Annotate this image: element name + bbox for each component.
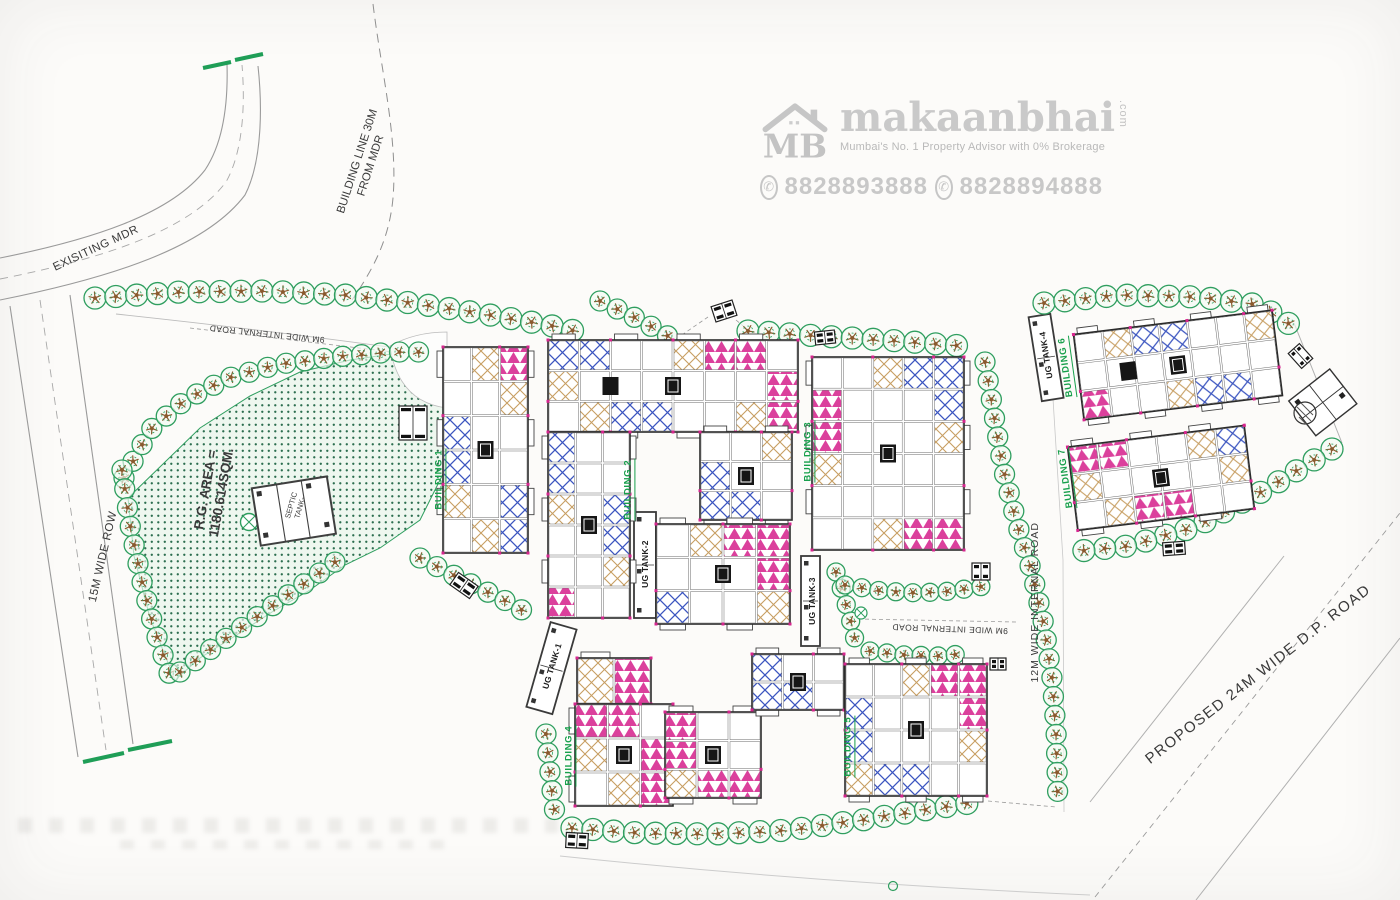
tree-icon: [728, 822, 750, 844]
building-4-footprint: [569, 652, 763, 808]
tree-icon: [221, 367, 241, 387]
tree-icon: [887, 583, 905, 601]
tree-row: [84, 280, 584, 341]
tree-icon: [946, 646, 964, 664]
tree-icon: [853, 579, 871, 597]
tree-icon: [790, 817, 812, 839]
site-plan-canvas: MB makaanbhai .com Mumbai's No. 1 Proper…: [0, 0, 1400, 900]
tree-icon: [142, 609, 162, 629]
tree-icon: [1116, 284, 1138, 306]
tree-icon: [749, 821, 771, 843]
tree-icon: [112, 460, 132, 480]
tree-icon: [371, 343, 391, 363]
tree-icon: [770, 819, 792, 841]
tree-icon: [167, 281, 189, 303]
parking-icon: [711, 300, 737, 322]
tree-icon: [981, 389, 1001, 409]
tree-icon: [105, 286, 127, 308]
tree-icon: [935, 796, 957, 818]
building-3-footprint: [806, 356, 970, 552]
tree-icon: [894, 802, 916, 824]
parking-icon: [399, 406, 427, 440]
tree-icon: [295, 351, 315, 371]
building-2-footprint: [542, 334, 800, 630]
tree-icon: [985, 408, 1005, 428]
tree-icon: [512, 600, 532, 620]
building-3-label: BUILDING 3: [796, 423, 815, 483]
tree-icon: [314, 348, 334, 368]
tree-icon: [544, 799, 564, 819]
tree-icon: [1179, 286, 1201, 308]
tree-icon: [128, 554, 148, 574]
tree-icon: [836, 576, 854, 594]
building-5-label: BUILDING 5: [836, 718, 855, 778]
tree-icon: [153, 645, 173, 665]
tree-icon: [1135, 530, 1157, 552]
tree-icon: [873, 805, 895, 827]
tree-icon: [1095, 285, 1117, 307]
tree-icon: [521, 311, 543, 333]
tree-icon: [352, 345, 372, 365]
tree-icon: [1043, 686, 1063, 706]
building-1-footprint: [437, 346, 534, 555]
tree-icon: [921, 583, 939, 601]
building-2-label: BUILDING 2: [616, 461, 635, 521]
manhole-icon: [855, 607, 867, 619]
tree-icon: [1094, 537, 1116, 559]
tree-icon: [978, 371, 998, 391]
tree-icon: [1009, 519, 1029, 539]
tree-icon: [1220, 290, 1242, 312]
tree-icon: [115, 479, 135, 499]
tree-icon: [500, 308, 522, 330]
tree-icon: [1073, 540, 1095, 562]
tree-icon: [1042, 668, 1062, 688]
tree-icon: [1114, 535, 1136, 557]
tree-icon: [991, 446, 1011, 466]
tree-icon: [999, 483, 1019, 503]
tree-icon: [938, 582, 956, 600]
tree-icon: [126, 284, 148, 306]
tree-icon: [841, 327, 863, 349]
tree-icon: [438, 298, 460, 320]
tree-icon: [1054, 290, 1076, 312]
tree-icon: [665, 822, 687, 844]
tree-icon: [479, 304, 501, 326]
tree-icon: [1200, 287, 1222, 309]
tree-icon: [209, 281, 231, 303]
tree-icon: [904, 584, 922, 602]
tree-icon: [1277, 312, 1299, 334]
tree-icon: [408, 342, 428, 362]
tree-icon: [1045, 705, 1065, 725]
tree-icon: [314, 283, 336, 305]
tree-icon: [325, 552, 345, 572]
parking-icon: [814, 330, 835, 345]
tree-icon: [955, 580, 973, 598]
tree-icon: [333, 346, 353, 366]
tree-icon: [188, 281, 210, 303]
tree-icon: [459, 301, 481, 323]
tree-icon: [147, 283, 169, 305]
tree-icon: [251, 280, 273, 302]
building-5-footprint: [751, 648, 989, 802]
tree-icon: [837, 596, 855, 614]
tree-icon: [1004, 501, 1024, 521]
tree-icon: [995, 464, 1015, 484]
tree-icon: [417, 294, 439, 316]
tree-icon: [861, 642, 879, 660]
tree-icon: [137, 591, 157, 611]
tree-icon: [258, 357, 278, 377]
building-1-label: BUILDING 1: [427, 451, 446, 511]
tree-icon: [707, 823, 729, 845]
tree-icon: [1048, 781, 1068, 801]
tree-icon: [929, 647, 947, 665]
tree-icon: [945, 335, 967, 357]
tree-icon: [988, 427, 1008, 447]
tree-icon: [1158, 285, 1180, 307]
internal-road-12m-label: 12M WIDE INTERNAL ROAD: [1029, 520, 1042, 685]
tree-icon: [853, 809, 875, 831]
tree-icon: [124, 535, 144, 555]
tree-icon: [355, 287, 377, 309]
tree-icon: [1137, 285, 1159, 307]
tree-icon: [239, 362, 259, 382]
tree-icon: [376, 289, 398, 311]
tree-icon: [686, 823, 708, 845]
tree-icon: [1047, 743, 1067, 763]
tree-icon: [334, 284, 356, 306]
parking-icon: [990, 658, 1006, 670]
tree-icon: [1046, 724, 1066, 744]
tree-icon: [120, 516, 140, 536]
tree-icon: [644, 822, 666, 844]
tree-icon: [811, 815, 833, 837]
tree-icon: [389, 342, 409, 362]
tree-icon: [878, 644, 896, 662]
tree-icon: [84, 287, 106, 309]
tree-icon: [832, 812, 854, 834]
building-6-footprint: [1071, 304, 1284, 426]
tree-icon: [1033, 292, 1055, 314]
tree-icon: [397, 292, 419, 314]
tree-icon: [883, 330, 905, 352]
parking-icon: [1288, 344, 1313, 369]
parking-icon: [972, 563, 990, 580]
ug-tank-3-label: UG TANK-3: [807, 566, 817, 636]
parking-icon: [1163, 541, 1186, 556]
tree-icon: [925, 333, 947, 355]
tree-row: [836, 576, 990, 602]
tree-icon: [538, 743, 558, 763]
parking-icon: [566, 832, 589, 848]
tree-icon: [603, 820, 625, 842]
tree-icon: [624, 822, 646, 844]
tree-icon: [975, 352, 995, 372]
tree-icon: [293, 282, 315, 304]
tree-icon: [862, 328, 884, 350]
tree-icon: [132, 572, 152, 592]
well-icon: [241, 514, 258, 531]
tree-icon: [1039, 649, 1059, 669]
building-4-label: BUILDING 4: [557, 727, 576, 787]
tree-icon: [846, 629, 864, 647]
tree-icon: [272, 281, 294, 303]
tree-icon: [1175, 519, 1197, 541]
manhole-icon: [889, 882, 898, 891]
tree-icon: [147, 627, 167, 647]
tree-icon: [870, 581, 888, 599]
tree-icon: [1047, 762, 1067, 782]
tree-icon: [904, 331, 926, 353]
tree-icon: [536, 724, 556, 744]
tree-icon: [230, 280, 252, 302]
tree-icon: [1075, 288, 1097, 310]
ug-tank-2-label: UG TANK-2: [640, 529, 650, 599]
substation-structure: [1289, 369, 1357, 436]
tree-icon: [276, 353, 296, 373]
